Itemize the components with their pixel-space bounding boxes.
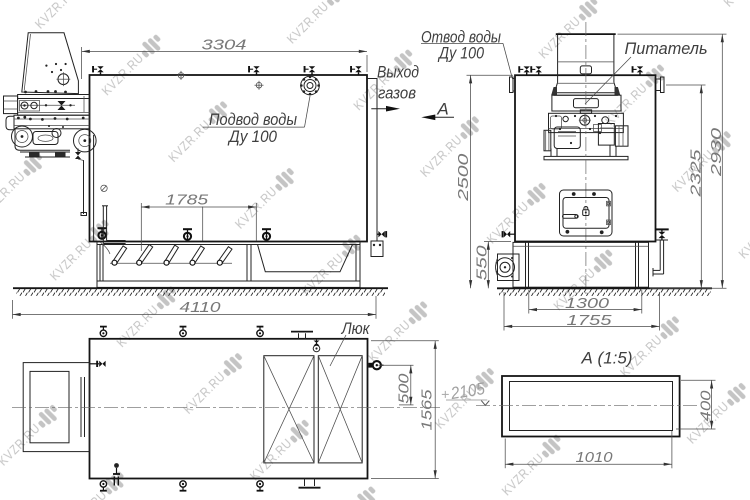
svg-text:500: 500 [397, 374, 413, 404]
svg-text:А: А [436, 100, 448, 119]
svg-text:1565: 1565 [420, 388, 436, 430]
svg-text:1010: 1010 [576, 450, 613, 466]
svg-text:2325: 2325 [689, 148, 705, 198]
svg-text:400: 400 [699, 391, 715, 422]
svg-text:газов: газов [378, 84, 416, 103]
svg-text:Питатель: Питатель [625, 39, 708, 58]
svg-text:1785: 1785 [165, 193, 209, 209]
svg-text:2930: 2930 [709, 128, 725, 177]
svg-text:Ду 100: Ду 100 [227, 127, 277, 146]
svg-text:4110: 4110 [180, 300, 221, 316]
svg-text:Люк: Люк [341, 319, 371, 338]
svg-text:2500: 2500 [456, 154, 472, 202]
svg-text:1300: 1300 [565, 296, 609, 312]
svg-text:3304: 3304 [202, 38, 247, 54]
svg-text:А (1:5): А (1:5) [581, 349, 633, 368]
svg-text:1755: 1755 [567, 313, 613, 329]
svg-text:Ду 100: Ду 100 [437, 43, 484, 62]
svg-text:550: 550 [475, 246, 491, 281]
svg-text:Выход: Выход [377, 62, 419, 81]
